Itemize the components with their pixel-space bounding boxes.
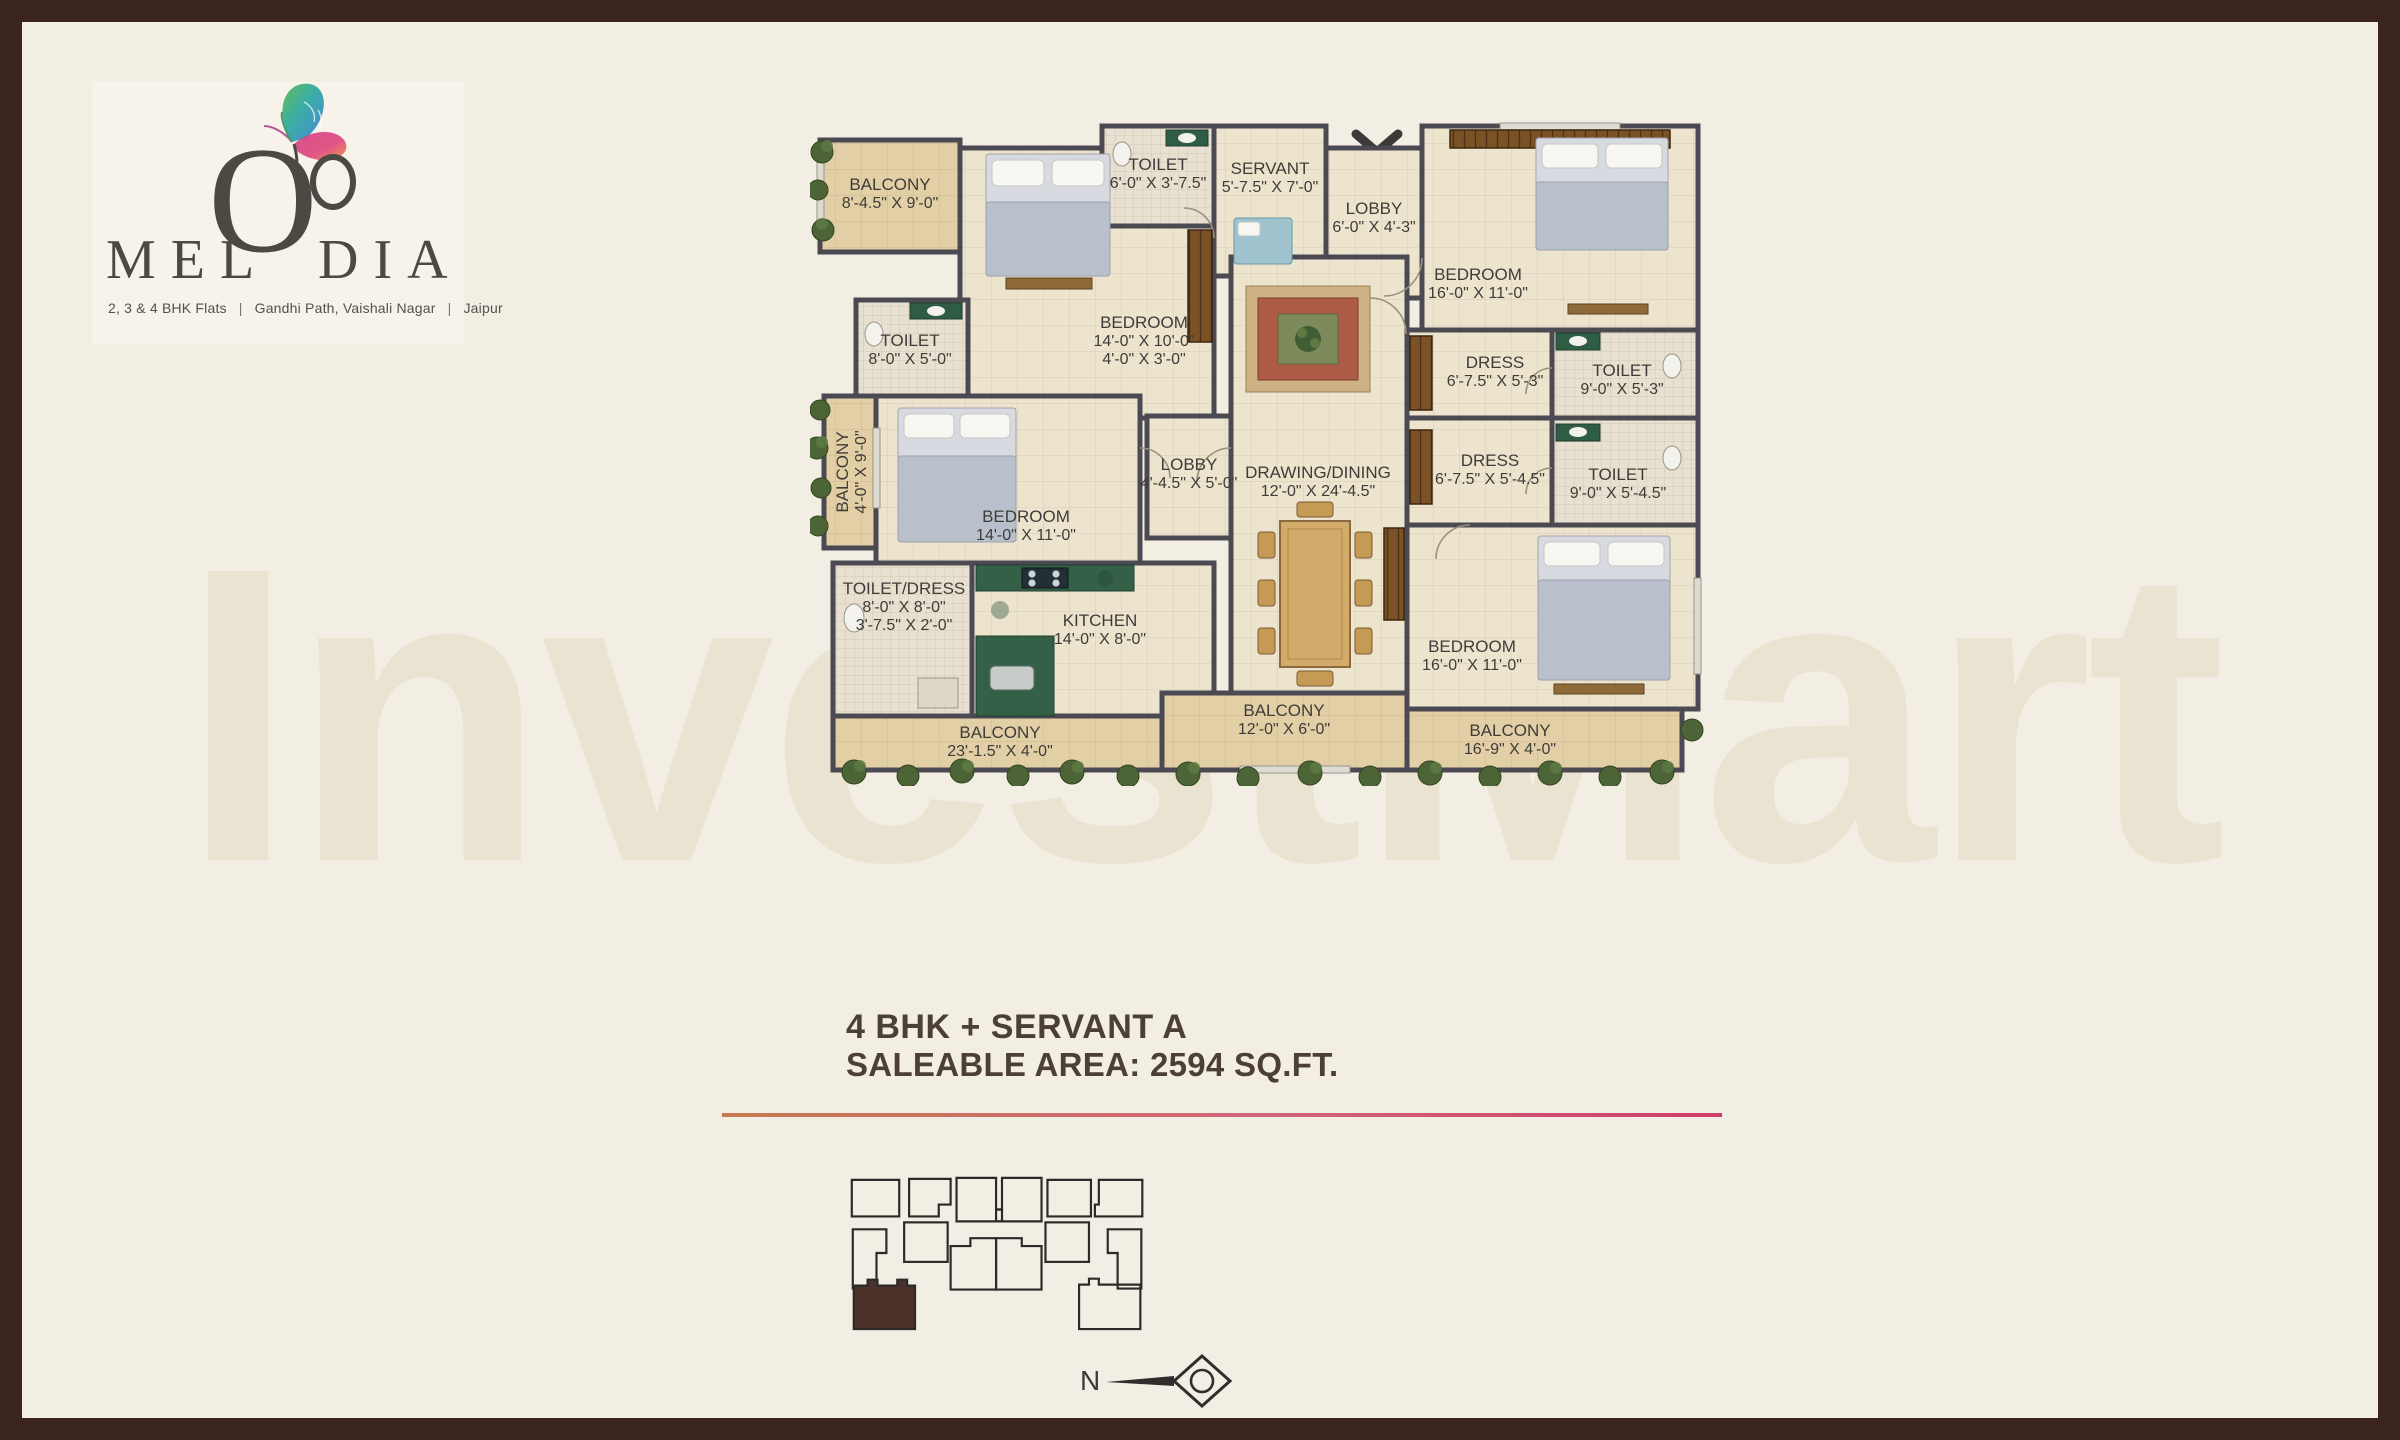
- svg-text:4'-0" X 3'-0": 4'-0" X 3'-0": [1102, 351, 1185, 368]
- label-bedroom-tm: BEDROOM: [1100, 313, 1188, 332]
- label-balcony-b3: BALCONY: [1469, 721, 1550, 740]
- svg-text:9'-0" X 5'-3": 9'-0" X 5'-3": [1580, 381, 1663, 398]
- svg-text:4'-0" X 9'-0": 4'-0" X 9'-0": [853, 430, 870, 513]
- svg-text:23'-1.5" X 4'-0": 23'-1.5" X 4'-0": [947, 743, 1053, 760]
- svg-text:16'-0" X 11'-0": 16'-0" X 11'-0": [1428, 285, 1528, 302]
- label-toilet-lr: TOILET: [1588, 465, 1647, 484]
- label-balcony-tl: BALCONY: [849, 175, 930, 194]
- svg-text:6'-0" X 4'-3": 6'-0" X 4'-3": [1332, 219, 1415, 236]
- svg-text:14'-0" X 8'-0": 14'-0" X 8'-0": [1054, 631, 1146, 648]
- label-balcony-left: BALCONY 4'-0" X 9'-0": [833, 430, 870, 513]
- label-toilet-dress: TOILET/DRESS: [843, 579, 966, 598]
- north-compass: N: [1074, 1346, 1244, 1415]
- rug-icon: [1246, 286, 1370, 392]
- label-toilet-top: TOILET: [1128, 155, 1187, 174]
- floor-plan: BALCONY 8'-4.5" X 9'-0" TOILET 6'-0" X 3…: [810, 118, 1706, 791]
- label-toilet-ur: TOILET: [1592, 361, 1651, 380]
- unit-title: 4 BHK + SERVANT A: [846, 1008, 1187, 1047]
- svg-text:9'-0" X 5'-4.5": 9'-0" X 5'-4.5": [1570, 485, 1667, 502]
- label-lobby-top: LOBBY: [1346, 199, 1403, 218]
- unit-saleable-area: SALEABLE AREA: 2594 SQ.FT.: [846, 1046, 1339, 1084]
- svg-text:5'-7.5" X 7'-0": 5'-7.5" X 7'-0": [1222, 179, 1319, 196]
- brand-ring-icon: [310, 154, 356, 210]
- key-plan: [834, 1158, 1170, 1353]
- label-toilet-left: TOILET: [880, 331, 939, 350]
- svg-text:6'-0" X 3'-7.5": 6'-0" X 3'-7.5": [1110, 175, 1207, 192]
- north-label: N: [1080, 1365, 1100, 1396]
- svg-text:4'-4.5" X 5'-0": 4'-4.5" X 5'-0": [1141, 475, 1238, 492]
- svg-text:3'-7.5" X 2'-0": 3'-7.5" X 2'-0": [856, 617, 953, 634]
- label-balcony-b2: BALCONY: [1243, 701, 1324, 720]
- brand-logo: MEL O DIA 2, 3 & 4 BHK Flats|Gandhi Path…: [92, 82, 464, 344]
- brochure-page: InvestMart MEL O DIA 2, 3 & 4 BHK Flats|…: [0, 0, 2400, 1440]
- svg-text:8'-0" X 8'-0": 8'-0" X 8'-0": [862, 599, 945, 616]
- svg-text:14'-0" X 11'-0": 14'-0" X 11'-0": [976, 527, 1076, 544]
- svg-text:8'-0" X 5'-0": 8'-0" X 5'-0": [868, 351, 951, 368]
- svg-text:12'-0" X 24'-4.5": 12'-0" X 24'-4.5": [1261, 483, 1375, 500]
- svg-text:12'-0" X 6'-0": 12'-0" X 6'-0": [1238, 721, 1330, 738]
- brand-name-o: O: [208, 124, 318, 276]
- label-servant: SERVANT: [1231, 159, 1310, 178]
- label-bedroom-ml: BEDROOM: [982, 507, 1070, 526]
- label-bedroom-br: BEDROOM: [1428, 637, 1516, 656]
- compass-diamond-icon: [1174, 1356, 1230, 1406]
- brand-name-right: DIA: [318, 228, 463, 292]
- gradient-divider: [722, 1113, 1722, 1117]
- compass-needle: [1106, 1376, 1174, 1386]
- svg-text:16'-9" X 4'-0": 16'-9" X 4'-0": [1464, 741, 1556, 758]
- label-balcony-b1: BALCONY: [959, 723, 1040, 742]
- label-dress-upper: DRESS: [1466, 353, 1525, 372]
- key-plan-highlighted-unit: [854, 1280, 915, 1329]
- label-dress-lower: DRESS: [1461, 451, 1520, 470]
- svg-text:14'-0" X 10'-0": 14'-0" X 10'-0": [1093, 333, 1194, 350]
- label-bedroom-tr: BEDROOM: [1434, 265, 1522, 284]
- label-drawing-dining: DRAWING/DINING: [1245, 463, 1391, 482]
- svg-text:16'-0" X 11'-0": 16'-0" X 11'-0": [1422, 657, 1522, 674]
- label-lobby-mid: LOBBY: [1161, 455, 1218, 474]
- label-kitchen: KITCHEN: [1063, 611, 1138, 630]
- svg-text:6'-7.5" X 5'-3": 6'-7.5" X 5'-3": [1447, 373, 1544, 390]
- brand-tagline: 2, 3 & 4 BHK Flats|Gandhi Path, Vaishali…: [108, 300, 458, 316]
- svg-text:8'-4.5" X 9'-0": 8'-4.5" X 9'-0": [842, 195, 939, 212]
- svg-text:6'-7.5" X 5'-4.5": 6'-7.5" X 5'-4.5": [1435, 471, 1545, 488]
- svg-text:BALCONY: BALCONY: [833, 431, 852, 512]
